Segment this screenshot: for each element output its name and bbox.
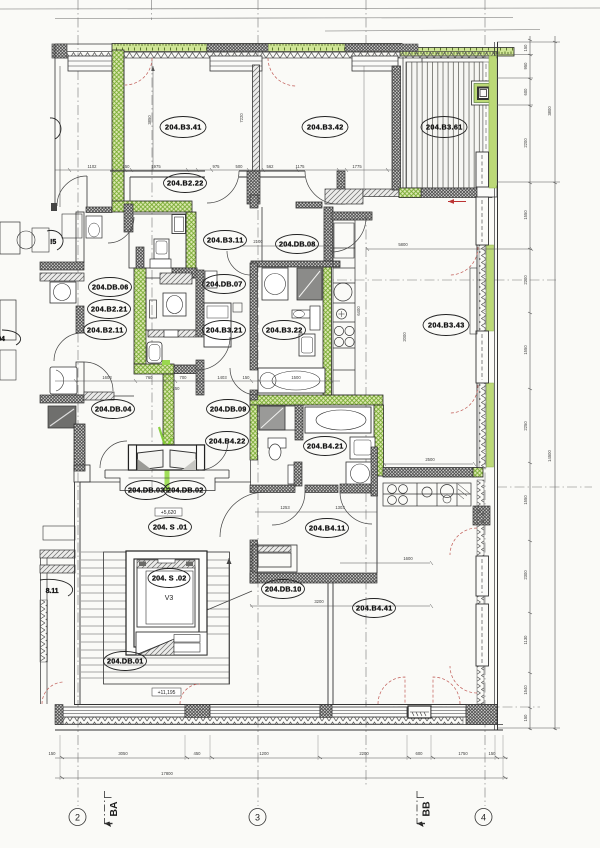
svg-text:1600: 1600 xyxy=(403,556,413,561)
svg-text:562: 562 xyxy=(267,164,275,169)
svg-text:1130: 1130 xyxy=(523,635,528,645)
svg-text:2250: 2250 xyxy=(523,421,528,431)
svg-text:2200: 2200 xyxy=(359,751,369,756)
svg-text:150: 150 xyxy=(49,751,57,756)
svg-text:204.B3.41: 204.B3.41 xyxy=(165,123,201,132)
svg-text:V3: V3 xyxy=(165,595,174,602)
svg-text:1403: 1403 xyxy=(217,375,227,380)
svg-text:7220: 7220 xyxy=(239,113,244,123)
svg-text:204.DB.04: 204.DB.04 xyxy=(95,405,131,414)
svg-text:204.B3.43: 204.B3.43 xyxy=(428,321,464,330)
svg-text:1175: 1175 xyxy=(295,164,305,169)
svg-text:975: 975 xyxy=(213,164,221,169)
svg-text:04: 04 xyxy=(0,334,5,343)
svg-text:204.B3.22: 204.B3.22 xyxy=(266,326,302,335)
svg-text:204.B4.11: 204.B4.11 xyxy=(309,524,345,533)
svg-text:204.DB.10: 204.DB.10 xyxy=(265,585,301,594)
svg-text:204.DB.09: 204.DB.09 xyxy=(210,405,246,414)
svg-text:204.B3.61: 204.B3.61 xyxy=(426,123,462,132)
svg-text:760: 760 xyxy=(146,375,154,380)
svg-text:204.DB.03: 204.DB.03 xyxy=(128,486,164,495)
svg-text:1750: 1750 xyxy=(458,751,468,756)
svg-text:2: 2 xyxy=(75,813,80,823)
svg-text:150: 150 xyxy=(523,714,528,722)
svg-text:3200: 3200 xyxy=(314,599,324,604)
svg-text:!5: !5 xyxy=(50,237,56,246)
svg-text:204.B2.21: 204.B2.21 xyxy=(91,305,127,314)
svg-text:2500: 2500 xyxy=(425,457,435,462)
svg-text:2200: 2200 xyxy=(523,138,528,148)
svg-text:BB: BB xyxy=(421,801,433,817)
svg-text:5800: 5800 xyxy=(398,242,408,247)
svg-text:8.11: 8.11 xyxy=(46,586,59,595)
svg-text:+11,195: +11,195 xyxy=(158,690,176,696)
svg-text:204.DB.08: 204.DB.08 xyxy=(279,240,315,249)
svg-text:2200: 2200 xyxy=(523,275,528,285)
svg-text:450: 450 xyxy=(194,751,202,756)
svg-text:600: 600 xyxy=(416,751,424,756)
svg-text:700: 700 xyxy=(180,375,188,380)
svg-text:204.B2.11: 204.B2.11 xyxy=(87,326,123,335)
svg-text:+5,620: +5,620 xyxy=(161,510,177,516)
svg-text:3: 3 xyxy=(255,813,260,823)
svg-text:150: 150 xyxy=(523,44,528,52)
svg-text:1540: 1540 xyxy=(523,685,528,695)
svg-text:150: 150 xyxy=(243,375,251,380)
svg-text:17800: 17800 xyxy=(161,771,173,776)
svg-text:204. S .01: 204. S .01 xyxy=(153,523,187,532)
svg-text:204.B2.22: 204.B2.22 xyxy=(167,179,203,188)
svg-text:2300: 2300 xyxy=(523,570,528,580)
svg-text:204.DB.02: 204.DB.02 xyxy=(167,486,203,495)
svg-text:1550: 1550 xyxy=(523,495,528,505)
svg-text:4: 4 xyxy=(481,813,486,823)
svg-text:1775: 1775 xyxy=(352,164,362,169)
svg-text:204.B3.21: 204.B3.21 xyxy=(206,326,242,335)
svg-text:1253: 1253 xyxy=(280,505,290,510)
svg-text:204.DB.06: 204.DB.06 xyxy=(92,283,128,292)
svg-text:500: 500 xyxy=(236,164,244,169)
svg-text:2100: 2100 xyxy=(253,239,263,244)
svg-text:14500: 14500 xyxy=(547,450,552,462)
svg-text:3850: 3850 xyxy=(147,115,152,125)
svg-text:250: 250 xyxy=(123,164,131,169)
svg-text:3800: 3800 xyxy=(547,106,552,116)
svg-text:204.B4.21: 204.B4.21 xyxy=(307,442,343,451)
svg-text:204.DB.07: 204.DB.07 xyxy=(206,280,242,289)
svg-text:6400: 6400 xyxy=(356,306,361,316)
svg-text:204.B3.42: 204.B3.42 xyxy=(307,123,343,132)
svg-text:3050: 3050 xyxy=(118,751,128,756)
svg-text:204. S .02: 204. S .02 xyxy=(152,574,186,583)
svg-text:250: 250 xyxy=(173,386,181,391)
svg-text:1500: 1500 xyxy=(291,375,301,380)
svg-text:1550: 1550 xyxy=(523,210,528,220)
svg-text:204.DB.01: 204.DB.01 xyxy=(107,657,143,666)
svg-text:1550: 1550 xyxy=(523,345,528,355)
svg-text:600: 600 xyxy=(523,88,528,96)
svg-text:1102: 1102 xyxy=(87,164,97,169)
svg-text:204.B3.11: 204.B3.11 xyxy=(207,236,243,245)
svg-text:204.B4.41: 204.B4.41 xyxy=(356,604,392,613)
svg-text:1200: 1200 xyxy=(259,751,269,756)
svg-text:BA: BA xyxy=(108,801,120,817)
svg-text:950: 950 xyxy=(523,62,528,70)
svg-text:2000: 2000 xyxy=(402,332,407,342)
svg-text:204.B4.22: 204.B4.22 xyxy=(209,437,245,446)
